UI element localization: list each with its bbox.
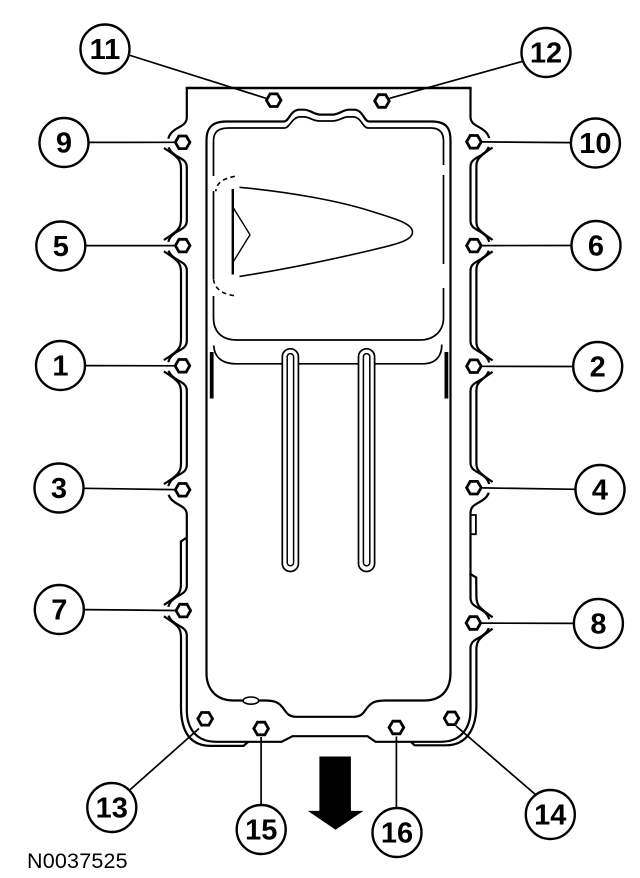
svg-text:7: 7 <box>51 595 67 627</box>
svg-text:14: 14 <box>534 800 566 832</box>
svg-text:12: 12 <box>530 38 562 70</box>
svg-text:1: 1 <box>52 351 68 383</box>
svg-text:2: 2 <box>590 352 606 384</box>
svg-text:11: 11 <box>90 34 121 66</box>
svg-text:10: 10 <box>579 128 611 160</box>
svg-text:4: 4 <box>592 475 608 507</box>
svg-text:13: 13 <box>96 793 128 825</box>
svg-text:15: 15 <box>245 815 277 847</box>
svg-text:3: 3 <box>51 473 67 505</box>
svg-text:8: 8 <box>590 609 606 641</box>
svg-text:5: 5 <box>53 231 69 263</box>
svg-text:9: 9 <box>56 128 72 160</box>
svg-text:16: 16 <box>381 818 413 850</box>
svg-text:6: 6 <box>588 231 604 263</box>
